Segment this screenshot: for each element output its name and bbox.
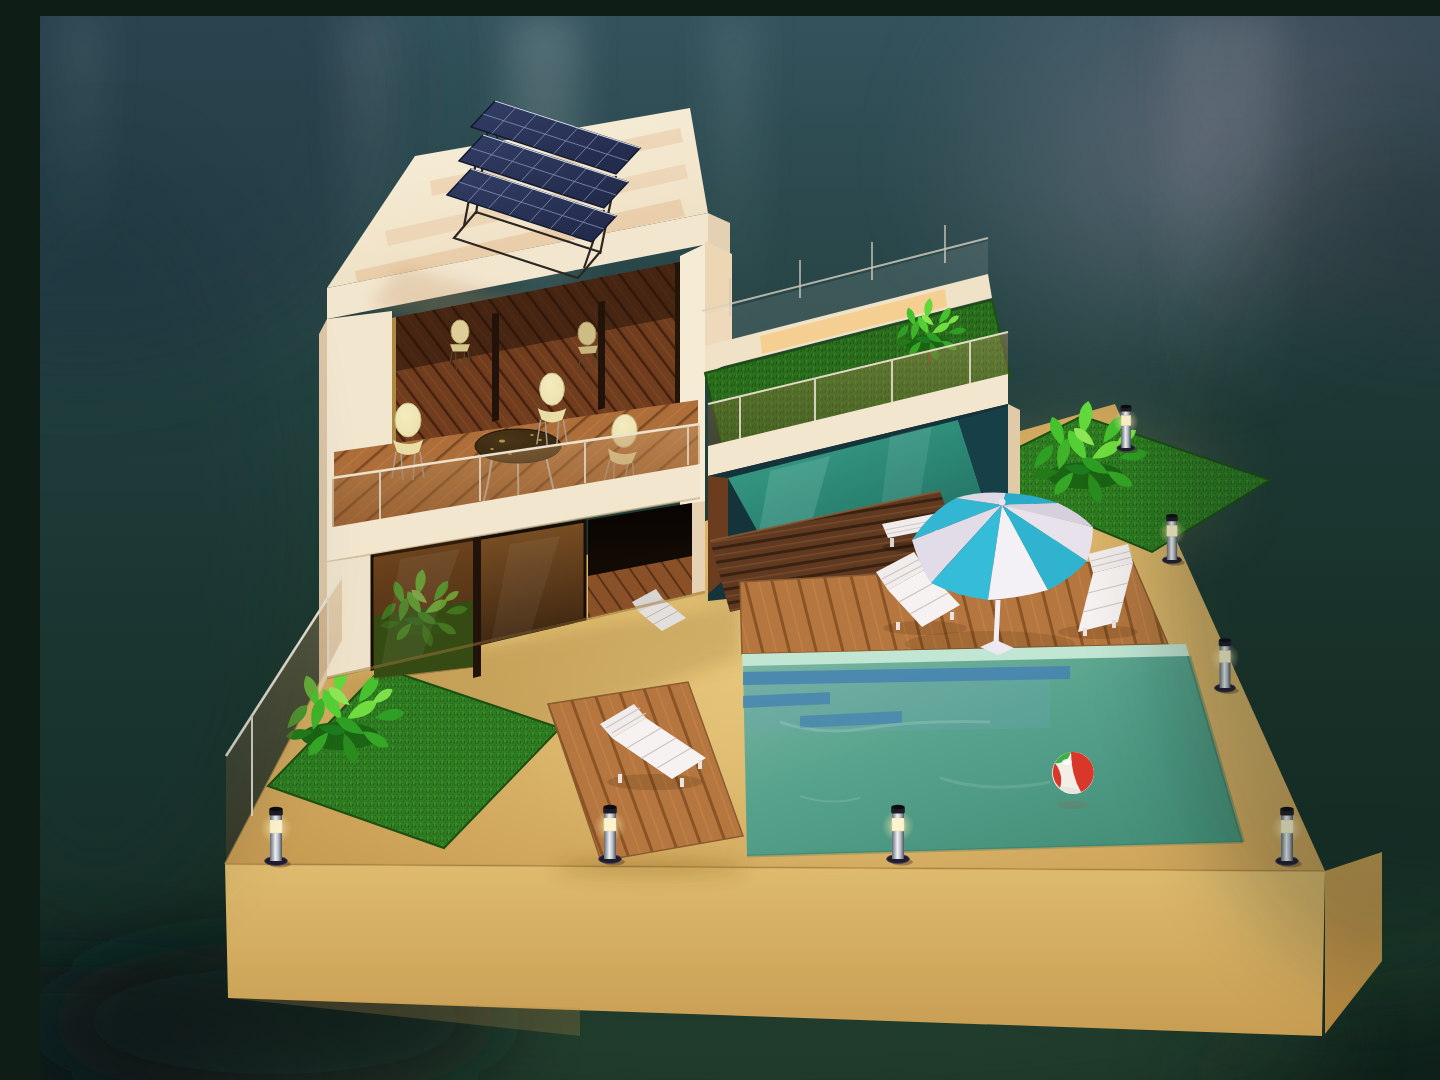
window-mullion xyxy=(598,301,605,410)
swimming-pool xyxy=(742,644,1243,856)
render-canvas: Low-poly 3D render — modern solar villa … xyxy=(40,16,1440,1080)
wall-column-right-lower xyxy=(692,501,705,594)
render-figure: Isometric-style low-poly render of a two… xyxy=(40,16,1440,1080)
window-mullion xyxy=(492,313,499,422)
parasol-finial xyxy=(999,499,1006,506)
lounger-alcove xyxy=(588,503,692,631)
parasol-pole xyxy=(996,600,998,644)
ball-reflection xyxy=(1057,801,1089,809)
deck-shadow xyxy=(555,857,745,879)
window-mullion xyxy=(473,537,481,678)
frame-trim xyxy=(675,262,680,409)
